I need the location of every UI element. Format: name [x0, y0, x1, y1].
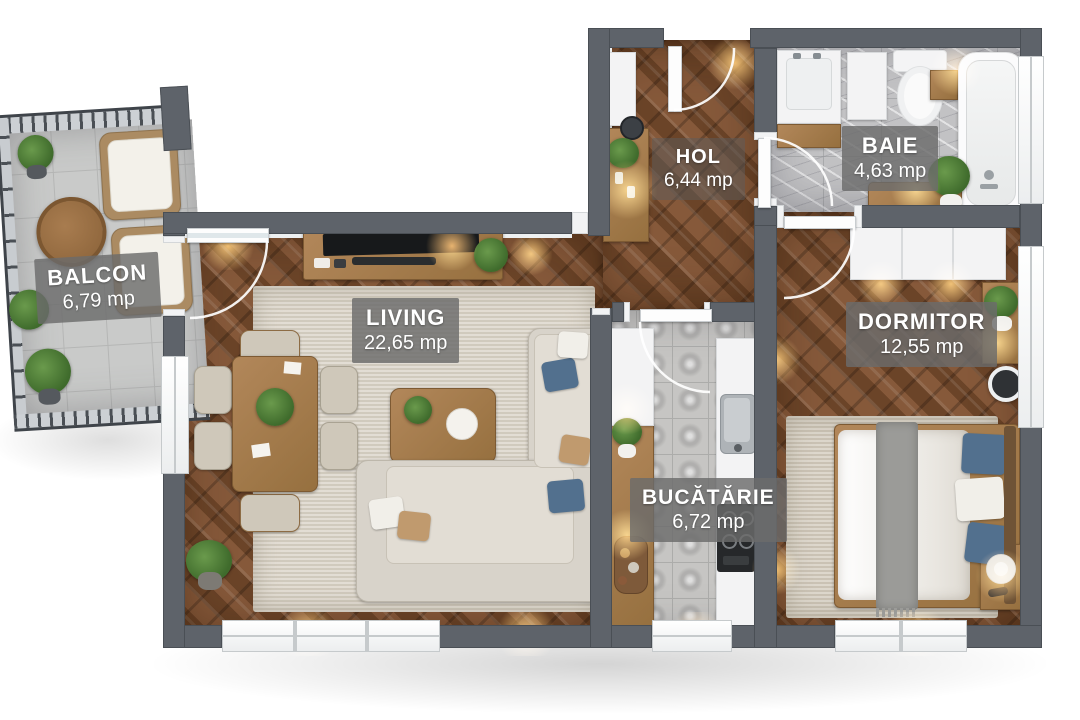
- door-jamb: [592, 308, 610, 315]
- wall: [1020, 198, 1042, 250]
- dining-chair: [194, 422, 232, 470]
- wall-living-kitchen: [590, 308, 612, 648]
- room-name: DORMITOR: [858, 309, 985, 335]
- balcony-wall-stub: [160, 86, 192, 152]
- vegetable: [618, 576, 627, 585]
- pillow: [557, 331, 589, 359]
- pillow: [547, 478, 586, 513]
- tv-decor: [314, 258, 330, 268]
- room-name: LIVING: [364, 305, 447, 331]
- dining-chair: [320, 366, 358, 414]
- soundbar: [352, 257, 436, 265]
- bed-throw-blanket: [876, 422, 918, 610]
- room-name: BUCĂTĂRIE: [642, 485, 775, 510]
- vegetable: [620, 548, 630, 558]
- kitchen-plant: [612, 418, 642, 446]
- kitchen-tall-unit: [610, 328, 654, 426]
- room-label-living: LIVING 22,65 mp: [352, 298, 459, 363]
- faucet: [813, 53, 821, 59]
- window-glass-line: [1030, 57, 1032, 203]
- wall: [163, 468, 185, 648]
- vegetable: [628, 562, 639, 573]
- kitchen-window: [652, 620, 732, 652]
- room-label-bucatarie: BUCĂTĂRIE 6,72 mp: [630, 478, 787, 542]
- door-jamb: [777, 205, 784, 228]
- bathroom-door: [758, 138, 771, 208]
- door-jamb: [572, 212, 588, 234]
- kitchen-door: [640, 309, 712, 322]
- wall: [710, 302, 756, 322]
- bedroom-wardrobe: [850, 226, 1006, 280]
- window-glass-line: [223, 635, 439, 637]
- room-area: 6,79 mp: [48, 286, 149, 317]
- pillow: [558, 434, 592, 466]
- room-area: 6,72 mp: [642, 510, 775, 535]
- room-name: BAIE: [854, 133, 926, 159]
- throw-fringe: [876, 608, 918, 617]
- wall: [163, 316, 185, 360]
- sink-basin: [786, 58, 832, 110]
- bed-pillow: [955, 476, 1006, 521]
- wall: [754, 206, 777, 226]
- door-jamb: [163, 236, 185, 243]
- living-window: [222, 620, 440, 652]
- room-label-balcon: BALCON 6,79 mp: [34, 252, 162, 325]
- bedroom-side-window: [1018, 246, 1044, 428]
- window-glass-line: [836, 635, 966, 637]
- wall: [965, 625, 1042, 648]
- wall: [588, 28, 610, 236]
- bathtub-drain: [984, 170, 994, 180]
- napkin: [284, 361, 302, 374]
- bathroom-cabinet: [847, 52, 887, 120]
- door-jamb: [624, 302, 630, 322]
- bath-shelf: [930, 70, 958, 100]
- table-plant: [256, 388, 294, 426]
- room-label-hol: HOL 6,44 mp: [652, 138, 745, 200]
- cooktop-knobs: [723, 556, 749, 565]
- window-glass-line: [174, 357, 176, 473]
- room-area: 12,55 mp: [858, 335, 985, 360]
- bathtub-faucet: [980, 184, 998, 189]
- coffee-table-plant: [404, 396, 432, 424]
- wall: [728, 625, 835, 648]
- plant-pot: [198, 572, 222, 590]
- dining-chair: [320, 422, 358, 470]
- wall-kitchen-bedroom: [754, 225, 777, 648]
- sink-drawer: [777, 124, 841, 148]
- candle: [627, 186, 635, 198]
- plant-pot: [26, 164, 47, 179]
- faucet: [793, 53, 801, 59]
- wall: [754, 48, 777, 140]
- balcony-glass-door: [187, 228, 269, 243]
- room-label-dormitor: DORMITOR 12,55 mp: [846, 302, 997, 367]
- window-glass-line: [1030, 247, 1032, 427]
- wall: [750, 28, 1040, 48]
- room-area: 6,44 mp: [664, 169, 733, 193]
- entrance-door: [668, 46, 682, 112]
- plant: [474, 238, 508, 272]
- room-label-baie: BAIE 4,63 mp: [842, 126, 938, 191]
- room-name: HOL: [664, 145, 733, 169]
- table-lamp: [986, 554, 1016, 584]
- hall-mirror: [620, 116, 644, 140]
- room-area: 22,65 mp: [364, 331, 447, 356]
- wall: [1020, 422, 1042, 648]
- wall: [438, 625, 652, 648]
- kitchen-sink-basin: [724, 398, 750, 442]
- bedroom-window: [835, 620, 967, 652]
- window-glass-line: [653, 635, 731, 637]
- room-area: 4,63 mp: [854, 159, 926, 184]
- kitchen-faucet: [734, 444, 742, 452]
- bathroom-window: [1018, 56, 1044, 204]
- wall: [612, 302, 624, 322]
- tv-decor: [334, 259, 346, 268]
- door-jamb: [163, 309, 185, 316]
- candle: [615, 172, 623, 184]
- serving-tray: [446, 408, 478, 440]
- living-side-window: [161, 356, 189, 474]
- bedroom-door: [784, 216, 856, 229]
- wall-bath-bedroom: [860, 205, 1020, 228]
- pillow: [541, 357, 580, 392]
- dining-chair: [194, 366, 232, 414]
- floor-plan: BALCON 6,79 mp: [0, 0, 1080, 720]
- hall-plant: [607, 138, 639, 168]
- dining-chair: [240, 494, 300, 532]
- bed-pillow: [961, 433, 1007, 475]
- pillow: [397, 510, 432, 541]
- napkin: [251, 443, 271, 458]
- plant-pot: [38, 388, 61, 405]
- plant-pot: [618, 444, 636, 458]
- coffee-table: [390, 388, 496, 464]
